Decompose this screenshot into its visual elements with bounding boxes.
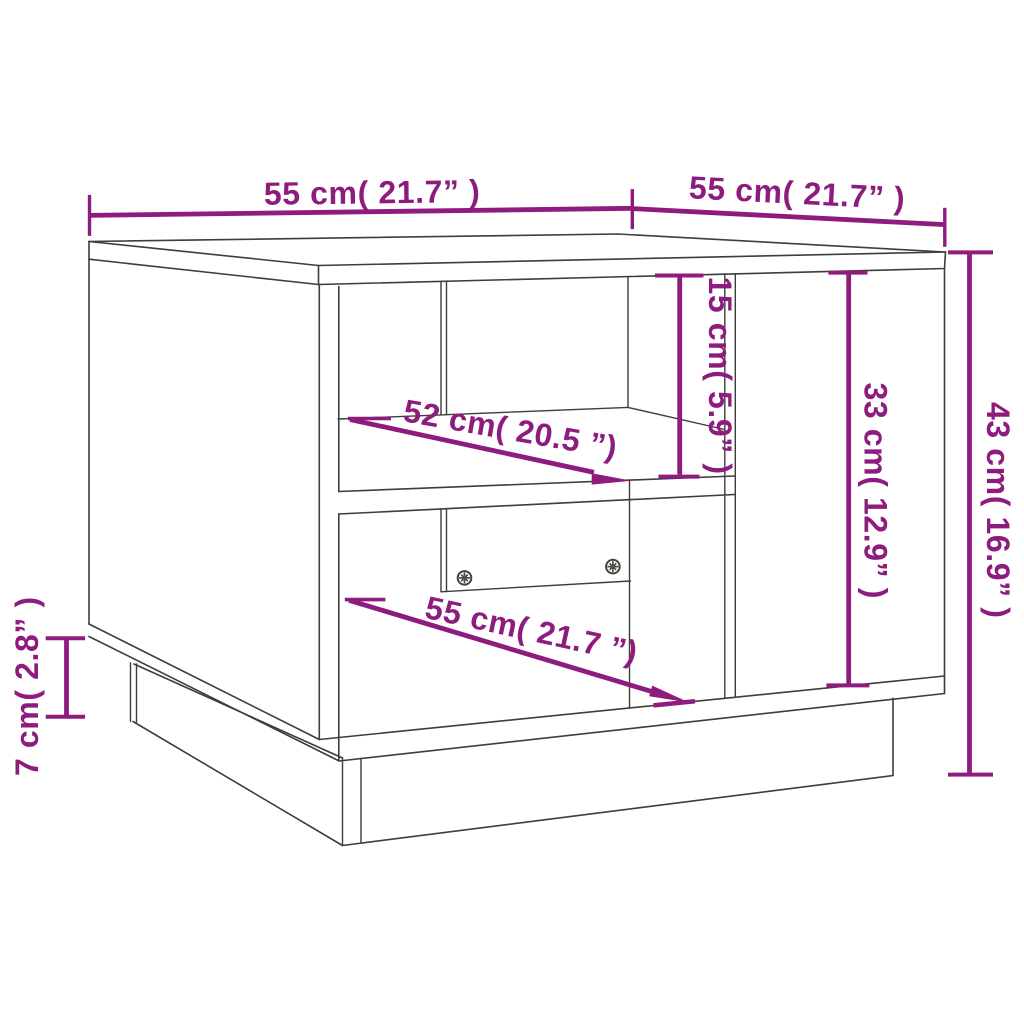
svg-text:7 cm( 2.8” ): 7 cm( 2.8” )	[9, 596, 45, 776]
svg-text:55 cm( 21.7” ): 55 cm( 21.7” )	[264, 173, 481, 212]
svg-text:15 cm( 5.9” ): 15 cm( 5.9” )	[702, 277, 738, 475]
svg-text:43 cm( 16.9” ): 43 cm( 16.9” )	[980, 402, 1016, 619]
svg-text:33 cm( 12.9” ): 33 cm( 12.9” )	[858, 383, 894, 600]
